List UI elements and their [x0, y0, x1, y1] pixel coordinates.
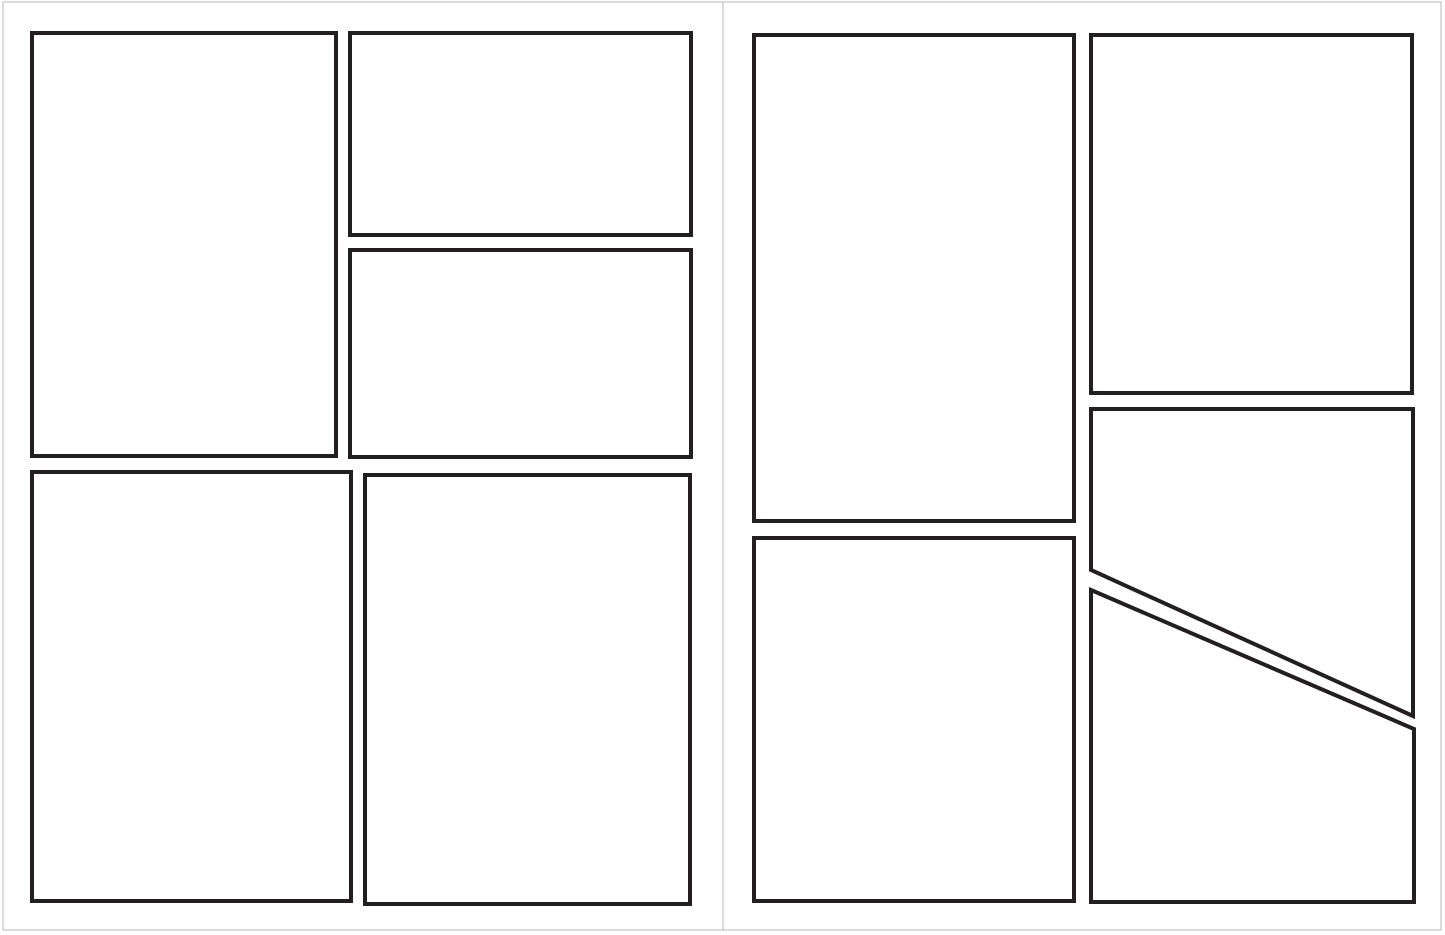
left-page-panel-top-right-upper	[350, 33, 691, 235]
left-page-panel-bottom-right	[365, 475, 690, 904]
right-page-panel-bottom-left	[754, 538, 1074, 901]
left-page-panel-top-right-lower	[350, 250, 691, 457]
left-page-panel-bottom-left	[32, 472, 351, 901]
right-page-panel-top-right	[1091, 35, 1412, 393]
left-page-panel-top-left-large	[32, 33, 336, 456]
right-page-panel-top-left-tall	[754, 35, 1074, 521]
comic-template-spread	[0, 0, 1445, 935]
spread-svg	[0, 0, 1445, 935]
